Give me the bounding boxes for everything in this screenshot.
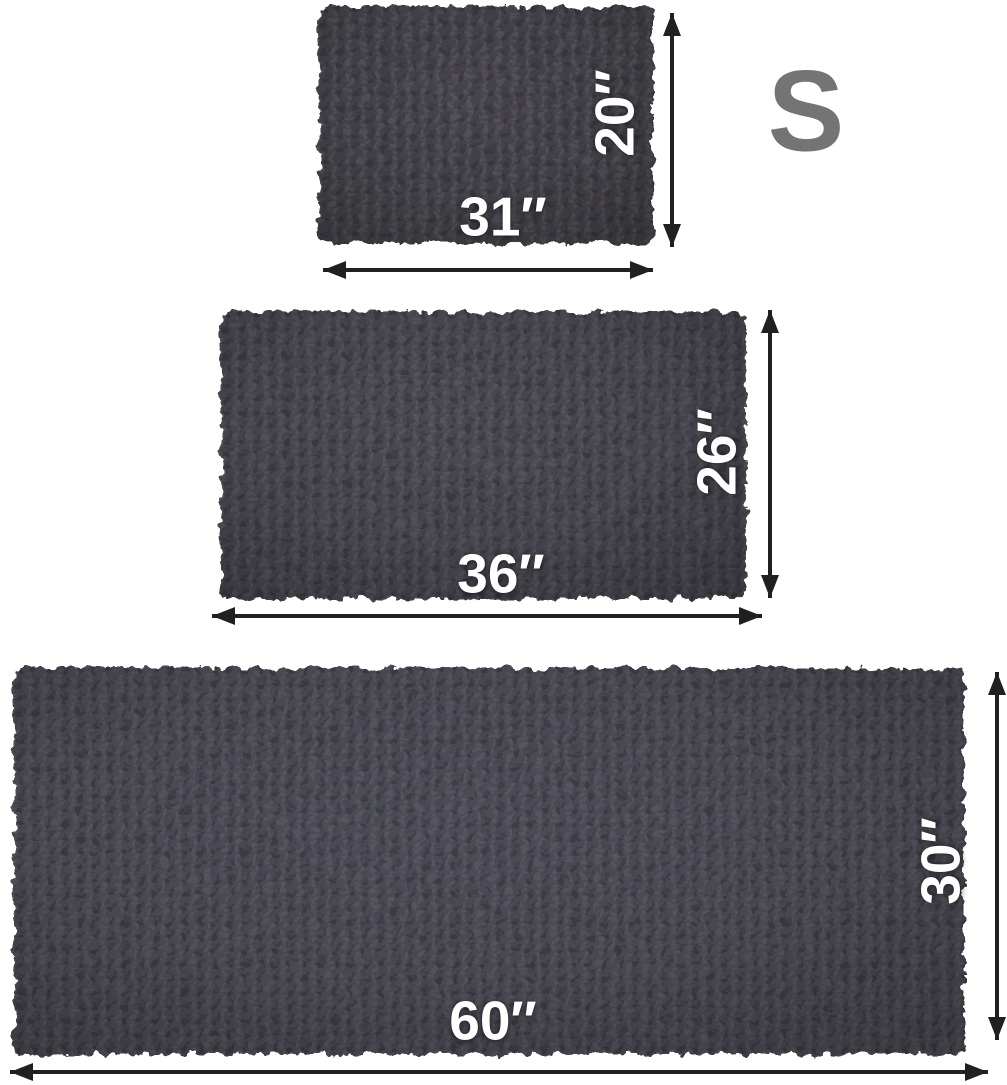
width-arrow-medium (212, 614, 762, 618)
width-label-large: 60″ (449, 994, 537, 1049)
height-label-small: 20″ (588, 69, 643, 157)
height-arrow-small (670, 13, 674, 247)
height-arrow-large (995, 672, 999, 1040)
width-arrow-small (323, 268, 653, 272)
width-arrow-large (10, 1070, 988, 1074)
height-label-large: 30″ (914, 817, 969, 905)
rug-size-chart: 20″ 31″ S 26″ 36″ 30″ 60″ (0, 0, 1007, 1085)
height-arrow-medium (768, 310, 772, 598)
width-label-small: 31″ (459, 190, 547, 245)
height-label-medium: 26″ (690, 408, 745, 496)
size-badge-s: S (768, 55, 845, 170)
width-label-medium: 36″ (457, 547, 545, 602)
